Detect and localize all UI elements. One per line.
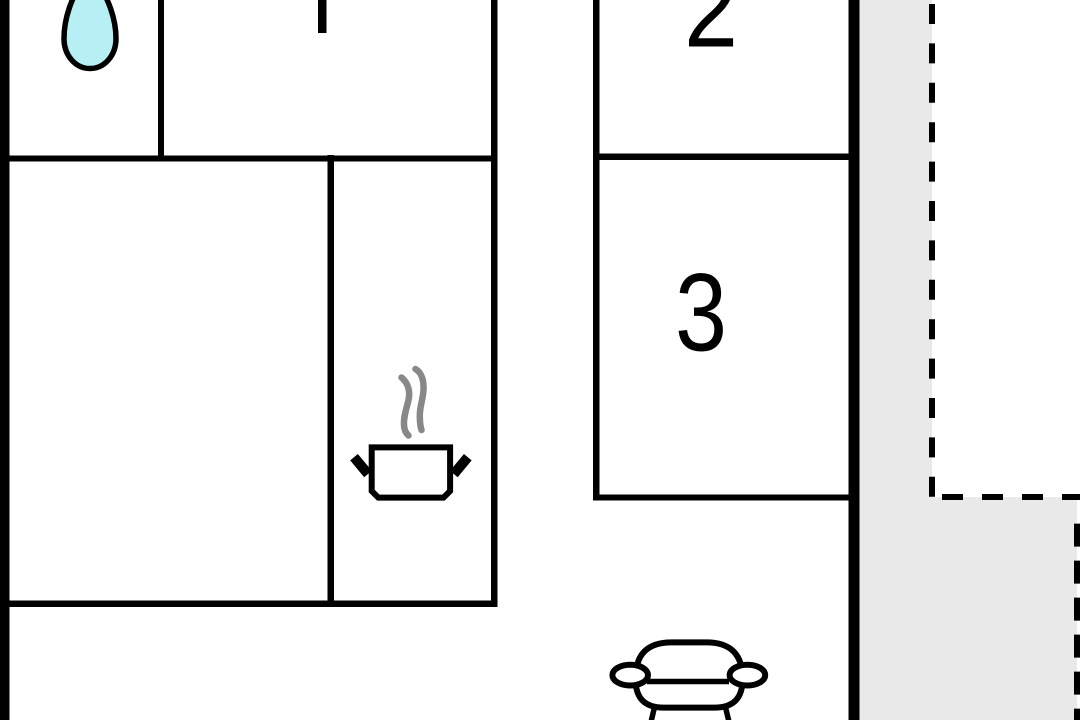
svg-text:2: 2 [684,0,738,70]
svg-text:3: 3 [675,251,727,374]
